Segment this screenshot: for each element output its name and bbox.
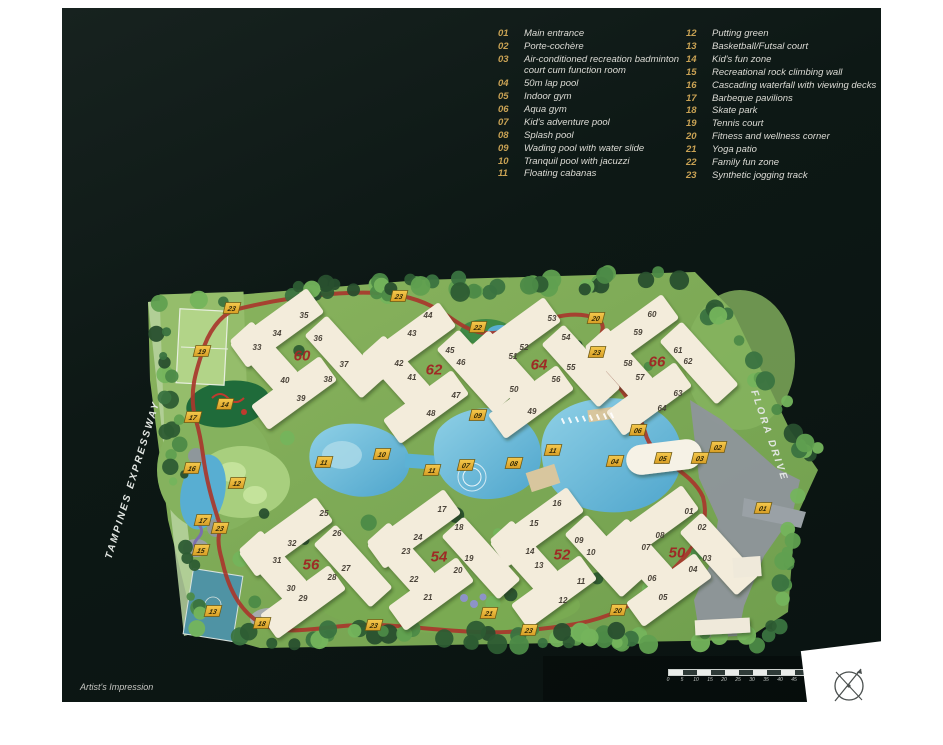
legend-column-right: 12Putting green13Basketball/Futsal court… bbox=[686, 28, 876, 183]
legend-item-label: Yoga patio bbox=[703, 144, 757, 155]
scale-bar-tick: 20 bbox=[721, 677, 727, 683]
unit-number: 53 bbox=[548, 314, 557, 323]
unit-number: 37 bbox=[340, 360, 349, 369]
unit-number: 03 bbox=[703, 554, 712, 563]
amenity-marker-06: 06 bbox=[629, 425, 647, 436]
unit-number: 49 bbox=[527, 407, 537, 416]
unit-number: 02 bbox=[698, 523, 707, 532]
unit-number: 26 bbox=[332, 529, 342, 538]
legend-item-05: 05Indoor gym bbox=[498, 91, 683, 102]
legend-item-19: 19Tennis court bbox=[686, 118, 876, 129]
scale-bar-tick: 0 bbox=[667, 677, 670, 683]
unit-number: 25 bbox=[319, 509, 329, 518]
unit-number: 52 bbox=[520, 343, 529, 352]
amenity-marker-20: 20 bbox=[609, 605, 627, 616]
legend-item-number: 14 bbox=[686, 54, 703, 65]
unit-number: 12 bbox=[559, 596, 568, 605]
compass-icon bbox=[826, 662, 872, 708]
legend-item-16: 16Cascading waterfall with viewing decks bbox=[686, 80, 876, 91]
amenity-marker-23: 23 bbox=[211, 523, 229, 534]
scale-bar-tick: 25 bbox=[735, 677, 741, 683]
legend-item-18: 18Skate park bbox=[686, 105, 876, 116]
unit-number: 06 bbox=[648, 574, 657, 583]
legend-item-label: Porte-cochère bbox=[515, 41, 682, 52]
amenity-marker-22: 22 bbox=[469, 322, 487, 333]
legend-item-03: 03Air-conditioned recreation badminton c… bbox=[498, 54, 683, 77]
block-number-54: 54 bbox=[431, 548, 448, 565]
unit-number: 20 bbox=[453, 566, 463, 575]
unit-number: 57 bbox=[636, 373, 645, 382]
legend-item-12: 12Putting green bbox=[686, 28, 876, 39]
unit-number: 05 bbox=[659, 593, 668, 602]
block-number-56: 56 bbox=[303, 556, 320, 573]
scale-bar-segment bbox=[683, 670, 697, 675]
scale-bar-segment bbox=[739, 670, 753, 675]
legend-item-label: Kid's adventure pool bbox=[515, 117, 682, 128]
amenity-marker-23: 23 bbox=[223, 303, 241, 314]
legend-item-02: 02Porte-cochère bbox=[498, 41, 683, 52]
unit-number: 29 bbox=[298, 594, 308, 603]
amenity-marker-17: 17 bbox=[184, 412, 202, 423]
legend-item-number: 22 bbox=[686, 157, 703, 168]
unit-number: 58 bbox=[624, 359, 633, 368]
legend-item-label: Indoor gym bbox=[515, 91, 682, 102]
amenity-marker-11: 11 bbox=[544, 445, 562, 456]
legend-item-label: Main entrance bbox=[515, 28, 682, 39]
legend-item-label: Cascading waterfall with viewing decks bbox=[703, 80, 876, 91]
unit-number: 35 bbox=[300, 311, 309, 320]
legend-item-label: Splash pool bbox=[515, 130, 682, 141]
legend-item-number: 11 bbox=[498, 168, 515, 179]
amenity-marker-18: 18 bbox=[253, 618, 271, 629]
amenity-marker-11: 11 bbox=[315, 457, 333, 468]
scale-bar-segment bbox=[725, 670, 739, 675]
legend-item-22: 22Family fun zone bbox=[686, 157, 876, 168]
amenity-marker-12: 12 bbox=[228, 478, 246, 489]
unit-number: 63 bbox=[674, 389, 683, 398]
unit-number: 43 bbox=[407, 329, 417, 338]
artist-impression-note: Artist's Impression bbox=[80, 682, 153, 692]
legend-item-label: Recreational rock climbing wall bbox=[703, 67, 842, 78]
amenity-marker-15: 15 bbox=[192, 545, 210, 556]
legend-item-number: 08 bbox=[498, 130, 515, 141]
unit-number: 21 bbox=[423, 593, 433, 602]
unit-number: 34 bbox=[273, 329, 282, 338]
legend-item-label: Barbeque pavilions bbox=[703, 93, 793, 104]
legend-item-number: 04 bbox=[498, 78, 515, 89]
legend-item-number: 23 bbox=[686, 170, 703, 181]
legend-item-09: 09Wading pool with water slide bbox=[498, 143, 683, 154]
legend-item-number: 01 bbox=[498, 28, 515, 39]
legend-item-14: 14Kid's fun zone bbox=[686, 54, 876, 65]
legend-item-number: 15 bbox=[686, 67, 703, 78]
unit-number: 55 bbox=[567, 363, 576, 372]
unit-number: 18 bbox=[455, 523, 464, 532]
amenity-marker-05: 05 bbox=[654, 453, 672, 464]
legend-item-label: 50m lap pool bbox=[515, 78, 682, 89]
scale-bar-track bbox=[668, 669, 810, 676]
unit-number: 46 bbox=[456, 358, 466, 367]
amenity-marker-19: 19 bbox=[193, 346, 211, 357]
scale-bar-segment bbox=[767, 670, 781, 675]
legend-item-01: 01Main entrance bbox=[498, 28, 683, 39]
unit-number: 42 bbox=[394, 359, 404, 368]
unit-number: 09 bbox=[575, 536, 584, 545]
unit-number: 56 bbox=[552, 375, 561, 384]
amenity-marker-10: 10 bbox=[373, 449, 391, 460]
legend-item-label: Aqua gym bbox=[515, 104, 682, 115]
legend-item-08: 08Splash pool bbox=[498, 130, 683, 141]
scale-bar-tick: 40 bbox=[777, 677, 783, 683]
legend-item-label: Family fun zone bbox=[703, 157, 779, 168]
unit-number: 40 bbox=[280, 376, 290, 385]
legend-item-21: 21Yoga patio bbox=[686, 144, 876, 155]
scale-bar-labels: 05101520253035404550 bbox=[668, 677, 810, 685]
legend-item-number: 07 bbox=[498, 117, 515, 128]
legend-item-number: 19 bbox=[686, 118, 703, 129]
block-number-60: 60 bbox=[294, 347, 311, 364]
block-number-50: 50 bbox=[669, 544, 686, 561]
legend-item-07: 07Kid's adventure pool bbox=[498, 117, 683, 128]
block-number-52: 52 bbox=[554, 546, 571, 563]
amenity-marker-14: 14 bbox=[216, 399, 234, 410]
unit-number: 11 bbox=[577, 577, 586, 586]
amenity-marker-21: 21 bbox=[480, 608, 498, 619]
legend-item-23: 23Synthetic jogging track bbox=[686, 170, 876, 181]
unit-number: 51 bbox=[509, 352, 518, 361]
legend-item-number: 16 bbox=[686, 80, 703, 91]
unit-number: 15 bbox=[530, 519, 539, 528]
scale-bar-tick: 15 bbox=[707, 677, 713, 683]
amenity-marker-23: 23 bbox=[365, 620, 383, 631]
unit-number: 38 bbox=[324, 375, 333, 384]
legend-item-number: 13 bbox=[686, 41, 703, 52]
unit-number: 31 bbox=[273, 556, 282, 565]
legend-item-04: 0450m lap pool bbox=[498, 78, 683, 89]
legend-item-number: 09 bbox=[498, 143, 515, 154]
unit-number: 19 bbox=[465, 554, 474, 563]
scale-bar-tick: 35 bbox=[763, 677, 769, 683]
scale-bar-tick: 45 bbox=[791, 677, 797, 683]
legend-item-13: 13Basketball/Futsal court bbox=[686, 41, 876, 52]
legend-item-label: Fitness and wellness corner bbox=[703, 131, 830, 142]
unit-number: 10 bbox=[587, 548, 596, 557]
amenity-marker-13: 13 bbox=[204, 606, 222, 617]
amenity-marker-03: 03 bbox=[691, 453, 709, 464]
scale-bar-tick: 30 bbox=[749, 677, 755, 683]
scale-bar-segment bbox=[753, 670, 767, 675]
block-number-62: 62 bbox=[426, 361, 443, 378]
legend-item-label: Tranquil pool with jacuzzi bbox=[515, 156, 682, 167]
unit-number: 47 bbox=[451, 391, 461, 400]
scale-bar-segment bbox=[669, 670, 683, 675]
amenity-marker-20: 20 bbox=[587, 313, 605, 324]
unit-number: 50 bbox=[510, 385, 519, 394]
unit-number: 30 bbox=[287, 584, 296, 593]
unit-number: 36 bbox=[314, 334, 323, 343]
scale-bar-tick: 5 bbox=[681, 677, 684, 683]
legend-item-11: 11Floating cabanas bbox=[498, 168, 683, 179]
unit-number: 23 bbox=[401, 547, 411, 556]
amenity-marker-08: 08 bbox=[505, 458, 523, 469]
legend-item-17: 17Barbeque pavilions bbox=[686, 93, 876, 104]
legend-item-number: 17 bbox=[686, 93, 703, 104]
unit-number: 44 bbox=[423, 311, 433, 320]
amenity-marker-07: 07 bbox=[457, 460, 475, 471]
unit-number: 33 bbox=[253, 343, 262, 352]
legend-item-20: 20Fitness and wellness corner bbox=[686, 131, 876, 142]
legend-item-label: Synthetic jogging track bbox=[703, 170, 808, 181]
unit-number: 60 bbox=[648, 310, 657, 319]
scale-bar-segment bbox=[697, 670, 711, 675]
unit-number: 39 bbox=[297, 394, 306, 403]
unit-number: 22 bbox=[409, 575, 419, 584]
block-number-66: 66 bbox=[649, 353, 666, 370]
scale-bar-segment bbox=[781, 670, 795, 675]
amenity-marker-09: 09 bbox=[469, 410, 487, 421]
unit-number: 08 bbox=[656, 531, 665, 540]
unit-number: 62 bbox=[684, 357, 693, 366]
unit-number: 24 bbox=[413, 533, 423, 542]
block-number-64: 64 bbox=[531, 356, 548, 373]
scale-bar-tick: 10 bbox=[693, 677, 699, 683]
unit-number: 54 bbox=[562, 333, 571, 342]
legend-item-10: 10Tranquil pool with jacuzzi bbox=[498, 156, 683, 167]
unit-number: 01 bbox=[685, 507, 694, 516]
amenity-marker-01: 01 bbox=[754, 503, 772, 514]
legend-item-number: 21 bbox=[686, 144, 703, 155]
legend-item-number: 20 bbox=[686, 131, 703, 142]
legend-item-number: 18 bbox=[686, 105, 703, 116]
legend-item-label: Putting green bbox=[703, 28, 769, 39]
amenity-marker-04: 04 bbox=[606, 456, 624, 467]
legend-item-label: Tennis court bbox=[703, 118, 763, 129]
amenity-marker-23: 23 bbox=[588, 347, 606, 358]
legend-item-06: 06Aqua gym bbox=[498, 104, 683, 115]
unit-number: 17 bbox=[438, 505, 447, 514]
legend-item-number: 02 bbox=[498, 41, 515, 52]
unit-number: 61 bbox=[674, 346, 683, 355]
unit-number: 27 bbox=[341, 564, 351, 573]
unit-number: 16 bbox=[553, 499, 562, 508]
unit-number: 64 bbox=[658, 404, 667, 413]
unit-number: 04 bbox=[689, 565, 698, 574]
legend-item-number: 12 bbox=[686, 28, 703, 39]
legend-item-number: 10 bbox=[498, 156, 515, 167]
unit-number: 13 bbox=[535, 561, 544, 570]
legend-item-number: 03 bbox=[498, 54, 515, 65]
amenity-marker-23: 23 bbox=[520, 625, 538, 636]
legend-item-label: Skate park bbox=[703, 105, 757, 116]
amenity-marker-23: 23 bbox=[390, 291, 408, 302]
legend-column-left: 01Main entrance02Porte-cochère03Air-cond… bbox=[498, 28, 683, 181]
amenity-marker-11: 11 bbox=[423, 465, 441, 476]
legend-item-number: 05 bbox=[498, 91, 515, 102]
unit-number: 14 bbox=[526, 547, 535, 556]
amenity-marker-02: 02 bbox=[709, 442, 727, 453]
unit-number: 41 bbox=[407, 373, 417, 382]
legend-item-label: Air-conditioned recreation badminton cou… bbox=[515, 54, 682, 77]
scale-bar-segment bbox=[711, 670, 725, 675]
unit-number: 32 bbox=[288, 539, 297, 548]
unit-number: 59 bbox=[634, 328, 643, 337]
legend-item-label: Basketball/Futsal court bbox=[703, 41, 808, 52]
unit-number: 28 bbox=[327, 573, 337, 582]
legend-item-label: Wading pool with water slide bbox=[515, 143, 682, 154]
amenity-marker-16: 16 bbox=[183, 463, 201, 474]
legend-item-15: 15Recreational rock climbing wall bbox=[686, 67, 876, 78]
unit-number: 45 bbox=[445, 346, 455, 355]
legend-item-label: Kid's fun zone bbox=[703, 54, 771, 65]
unit-number: 07 bbox=[642, 543, 651, 552]
legend-item-number: 06 bbox=[498, 104, 515, 115]
legend-item-label: Floating cabanas bbox=[515, 168, 682, 179]
scale-bar: 05101520253035404550 bbox=[668, 669, 810, 685]
unit-number: 48 bbox=[426, 409, 436, 418]
amenity-marker-17: 17 bbox=[194, 515, 212, 526]
